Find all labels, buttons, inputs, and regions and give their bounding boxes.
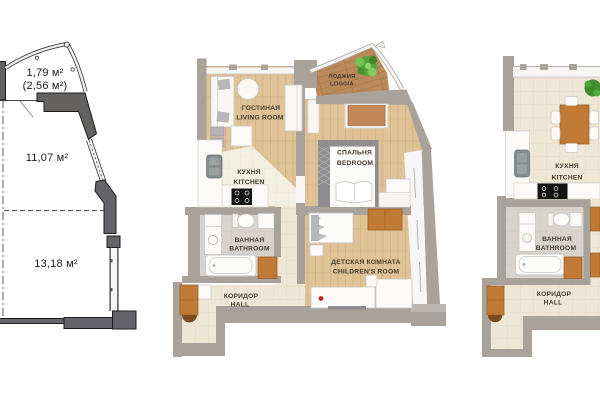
svg-text:LOGGIA: LOGGIA — [330, 82, 354, 88]
svg-text:ВАННАЯ: ВАННАЯ — [542, 236, 572, 243]
svg-text:КУХНЯ: КУХНЯ — [237, 169, 261, 176]
svg-text:KITCHEN: KITCHEN — [233, 179, 264, 186]
svg-text:11,07 м²: 11,07 м² — [26, 152, 69, 164]
svg-text:(2,56 м²): (2,56 м²) — [23, 80, 68, 92]
svg-text:LIVING ROOM: LIVING ROOM — [236, 115, 283, 122]
svg-text:CHILDREN'S ROOM: CHILDREN'S ROOM — [333, 269, 399, 276]
svg-text:KITCHEN: KITCHEN — [551, 175, 582, 182]
svg-text:1,79 м²: 1,79 м² — [26, 67, 63, 79]
svg-text:BATHROOM: BATHROOM — [229, 246, 270, 253]
svg-text:КОРИДОР: КОРИДОР — [537, 291, 572, 298]
svg-text:HALL: HALL — [231, 302, 250, 309]
svg-text:BATHROOM: BATHROOM — [536, 245, 577, 252]
svg-text:ГОСТИНАЯ: ГОСТИНАЯ — [242, 105, 281, 112]
svg-text:КОРИДОР: КОРИДОР — [224, 293, 259, 300]
svg-text:ВАННАЯ: ВАННАЯ — [235, 237, 265, 244]
svg-text:КУХНЯ: КУХНЯ — [555, 163, 579, 170]
svg-text:ДЕТСКАЯ КОМНАТА: ДЕТСКАЯ КОМНАТА — [331, 259, 400, 266]
svg-text:BEDROOM: BEDROOM — [337, 160, 374, 167]
svg-text:13,18 м²: 13,18 м² — [34, 258, 78, 270]
svg-text:СПАЛЬНЯ: СПАЛЬНЯ — [337, 150, 372, 157]
svg-text:HALL: HALL — [544, 300, 563, 307]
svg-text:ЛОДЖИЯ: ЛОДЖИЯ — [329, 74, 356, 80]
